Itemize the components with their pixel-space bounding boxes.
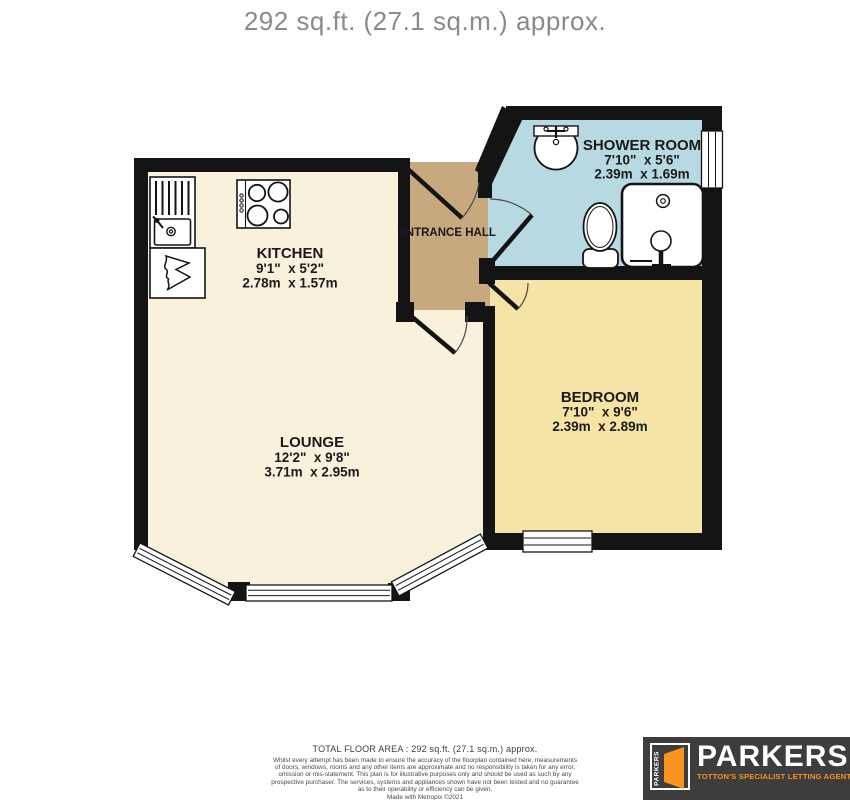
logo-main: PARKERS TOTTON'S SPECIALIST LETTING AGEN… xyxy=(697,741,847,781)
kitchen-appliance-icon xyxy=(150,248,205,298)
wall-bedroom-bottom xyxy=(483,533,722,550)
room-dimensions-imperial: 7'10" x 9'6" xyxy=(562,405,638,420)
hob-icon xyxy=(237,180,290,228)
room-dimensions-imperial: 12'2" x 9'8" xyxy=(274,450,350,465)
wash-basin-icon xyxy=(534,126,578,170)
logo-badge-vertical-text: PARKERS xyxy=(653,748,662,790)
room-name: KITCHEN xyxy=(257,245,324,262)
wall-hall-left xyxy=(398,158,410,320)
room-name: LOUNGE xyxy=(280,434,344,451)
kitchen-sink-icon xyxy=(150,177,195,248)
door-icon xyxy=(662,746,686,790)
room-dimensions-metric: 2.78m x 1.57m xyxy=(242,276,337,291)
room-name: ENTRANCE HALL xyxy=(398,227,496,239)
wall-hall-bottom-right-stub xyxy=(465,302,485,322)
room-dimensions-metric: 3.71m x 2.95m xyxy=(264,465,359,480)
logo-tagline: TOTTON'S SPECIALIST LETTING AGENT xyxy=(697,772,847,781)
floorplan-page: 292 sq.ft. (27.1 sq.m.) approx. xyxy=(0,0,850,800)
entrance-hall-label: ENTRANCE HALL xyxy=(398,227,496,239)
wall-left xyxy=(134,158,148,550)
bay-window-front xyxy=(246,585,392,601)
floorplan-drawing: KITCHEN 9'1" x 5'2" 2.78m x 1.57m LOUNGE… xyxy=(0,0,850,800)
room-dimensions-metric: 2.39m x 2.89m xyxy=(552,419,647,434)
room-name: SHOWER ROOM xyxy=(583,137,701,154)
wall-shower-top xyxy=(506,106,722,120)
parkers-logo-badge: PARKERS xyxy=(650,743,690,790)
wall-top xyxy=(134,158,410,172)
shower-enclosure-icon xyxy=(622,184,703,267)
logo-brand-text: PARKERS xyxy=(697,741,847,772)
room-dimensions-metric: 2.39m x 1.69m xyxy=(594,167,689,182)
room-name: BEDROOM xyxy=(561,389,639,406)
bedroom-label: BEDROOM 7'10" x 9'6" 2.39m x 2.89m xyxy=(552,389,647,434)
room-dimensions-imperial: 9'1" x 5'2" xyxy=(256,261,324,276)
shower-room-window xyxy=(702,131,723,188)
bedroom-window xyxy=(523,531,592,552)
toilet-icon xyxy=(583,203,618,268)
wall-lounge-bedroom-divider xyxy=(483,306,495,542)
room-dimensions-imperial: 7'10" x 5'6" xyxy=(604,153,680,168)
parkers-logo: PARKERS PARKERS TOTTON'S SPECIALIST LETT… xyxy=(643,737,850,800)
